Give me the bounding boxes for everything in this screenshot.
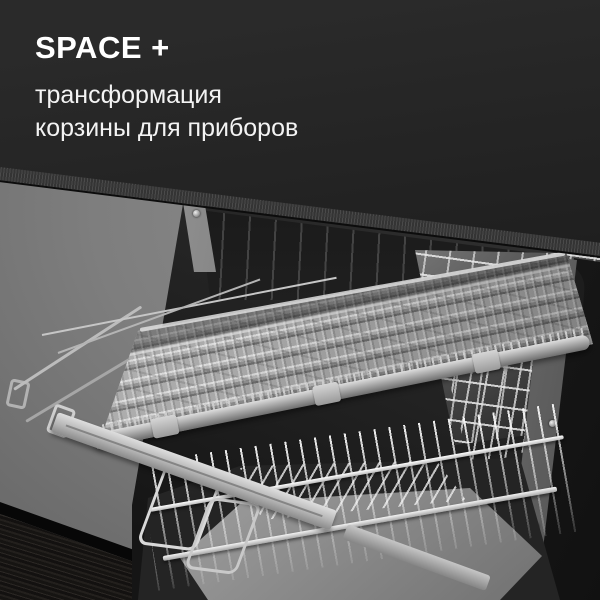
caption: SPACE + трансформация корзины для прибор… <box>35 31 298 145</box>
caption-title: SPACE + <box>35 31 298 65</box>
product-photo: SPACE + трансформация корзины для прибор… <box>0 0 600 600</box>
frame-screw-icon <box>193 210 200 217</box>
caption-subtitle: трансформация корзины для приборов <box>35 79 298 145</box>
caption-subtitle-line2: корзины для приборов <box>35 112 298 145</box>
caption-subtitle-line1: трансформация <box>35 79 298 112</box>
